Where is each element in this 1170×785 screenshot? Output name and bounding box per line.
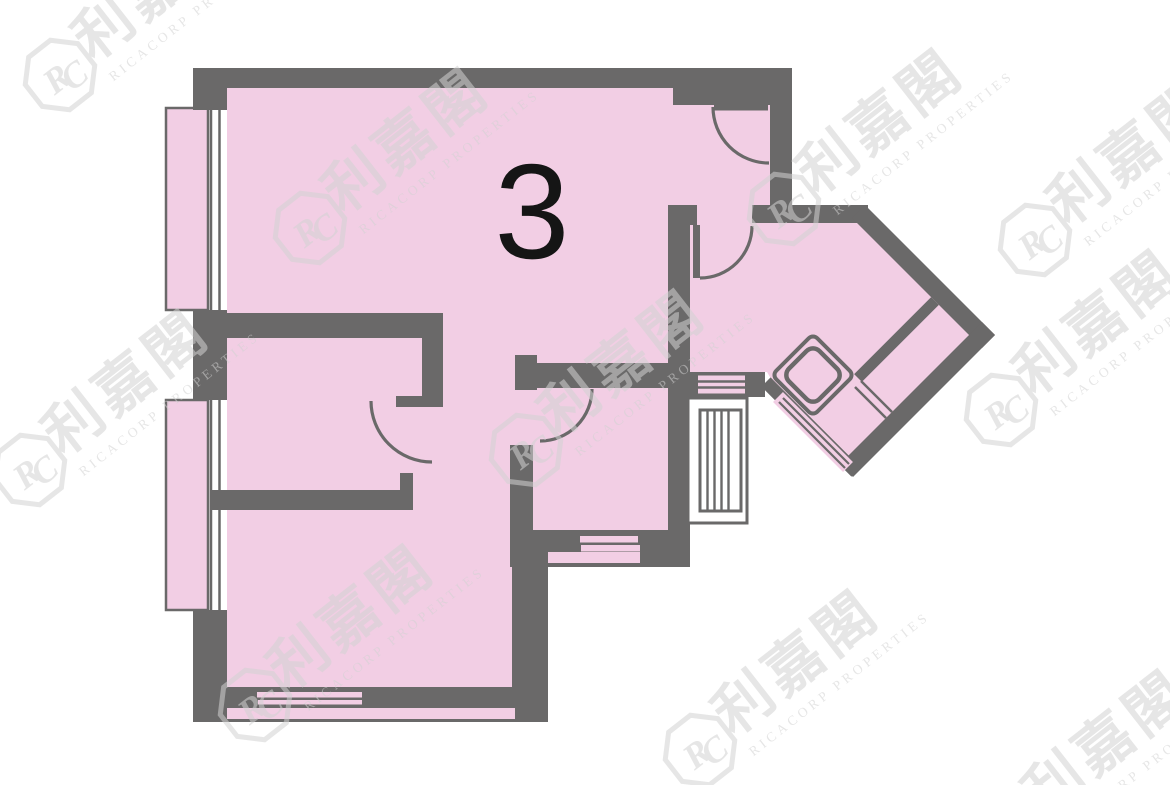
bedroom-door-leaf bbox=[396, 396, 433, 407]
wall-wing-door-jamb bbox=[668, 205, 697, 225]
wall-left-upper bbox=[193, 68, 227, 110]
entrance-door-leaf bbox=[714, 104, 768, 111]
bay-window-upper bbox=[166, 108, 208, 310]
wing-doorway-floor bbox=[697, 205, 752, 225]
wall-top-step bbox=[673, 88, 770, 105]
wall-top bbox=[193, 68, 792, 88]
watermark: R C 利嘉閣 RICACORP PROPERTIES bbox=[957, 633, 1170, 785]
louvre-window-small-room bbox=[580, 536, 638, 543]
lightwell-grille bbox=[688, 398, 747, 523]
wing-door-leaf bbox=[693, 225, 700, 278]
wall-bottom-right-column bbox=[512, 545, 548, 722]
wall-entrance-right bbox=[770, 88, 792, 205]
wall-divider-end-cap bbox=[400, 473, 413, 510]
watermark: R C 利嘉閣 RICACORP PROPERTIES bbox=[647, 553, 933, 785]
lightwell-outer-frame bbox=[688, 398, 747, 523]
louvre-window-wing bbox=[698, 376, 745, 394]
louvre-window-small-room bbox=[581, 545, 640, 552]
unit-number-label: 3 bbox=[494, 136, 569, 287]
wall-bedroom-top bbox=[227, 313, 443, 338]
wall-room-divider bbox=[210, 490, 413, 510]
floor-plan-svg: 3 R C 利嘉閣 RICACORP PROPERTIES R C 利嘉閣 RI… bbox=[0, 0, 1170, 785]
floor-plan-image: 3 R C 利嘉閣 RICACORP PROPERTIES R C 利嘉閣 RI… bbox=[0, 0, 1170, 785]
wall-small-room-left-upper bbox=[515, 355, 537, 390]
window-sill-small-room bbox=[548, 552, 640, 563]
bay-window-lower bbox=[166, 400, 208, 610]
